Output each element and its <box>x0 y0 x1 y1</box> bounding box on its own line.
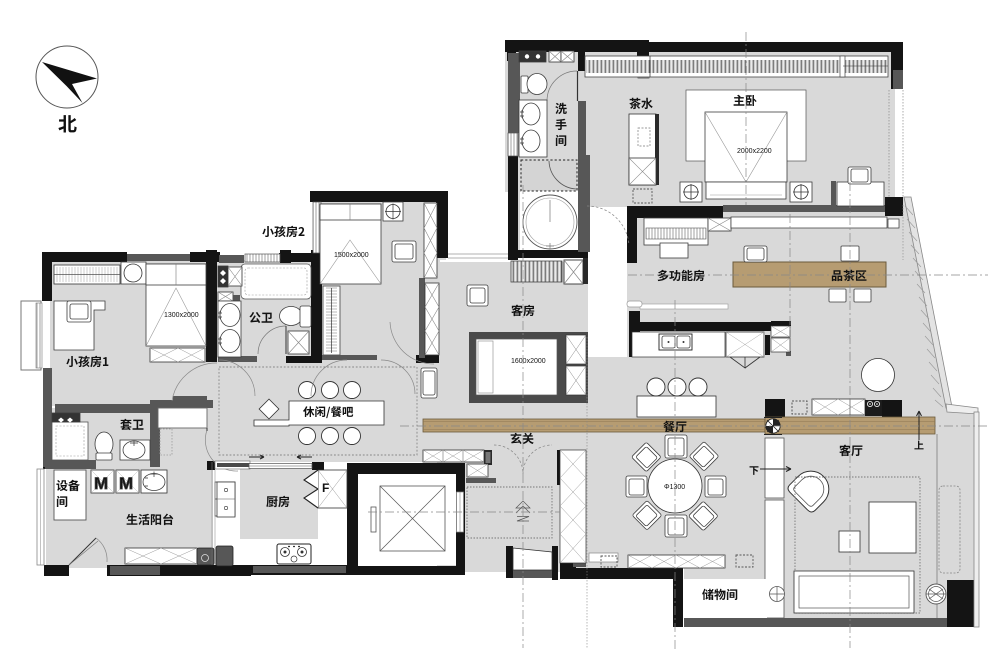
svg-text:Φ1300: Φ1300 <box>664 484 685 491</box>
svg-text:M: M <box>119 474 133 493</box>
svg-text:1600x2000: 1600x2000 <box>511 358 546 365</box>
svg-text:1500x2000: 1500x2000 <box>334 252 369 259</box>
svg-text:M: M <box>94 474 108 493</box>
svg-text:1300x2000: 1300x2000 <box>164 312 199 319</box>
svg-text:F: F <box>322 481 329 495</box>
svg-text:2000x2200: 2000x2200 <box>737 148 772 155</box>
